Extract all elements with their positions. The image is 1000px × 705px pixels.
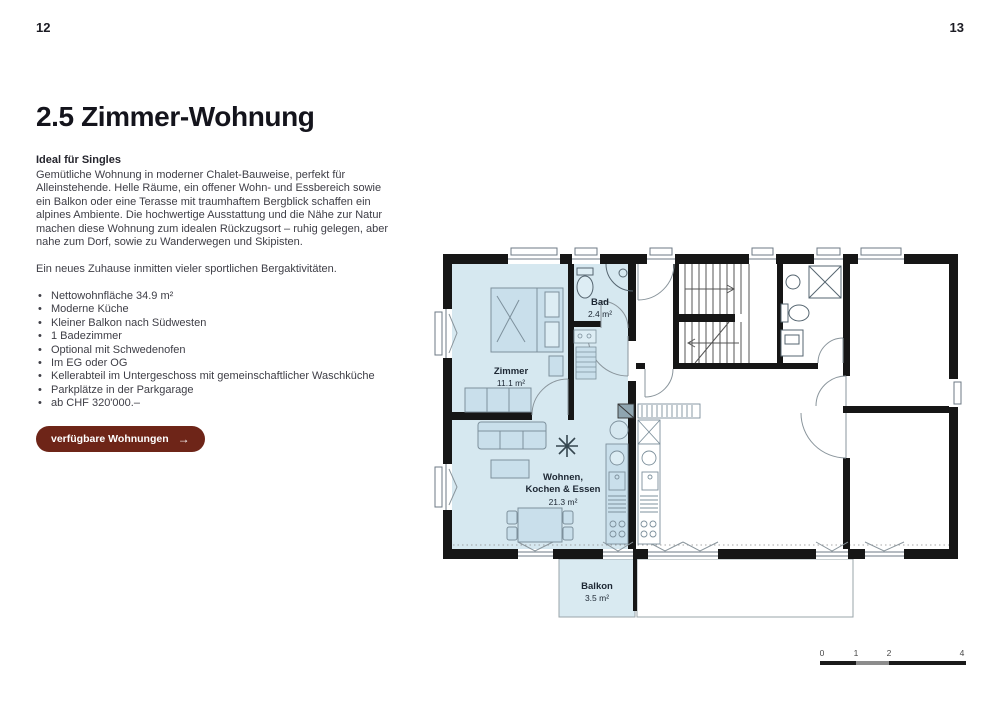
- scale-bar: 0 1 2 4: [820, 648, 970, 672]
- nightstand: [549, 356, 563, 376]
- sofa: [478, 422, 546, 449]
- section-subtitle: Ideal für Singles: [36, 154, 396, 168]
- scale-bar-line: [820, 661, 966, 665]
- neighbor-terrace: [637, 559, 853, 617]
- room-label-balkon: Balkon: [581, 581, 613, 592]
- arrow-right-icon: →: [178, 434, 190, 444]
- feature-item: Optional mit Schwedenofen: [36, 344, 396, 357]
- scale-tick: 1: [854, 648, 859, 658]
- feature-item: 1 Badezimmer: [36, 330, 396, 343]
- note-paragraph: Ein neues Zuhause inmitten vieler sportl…: [36, 263, 396, 277]
- room-label-wohnen-2: Kochen & Essen: [526, 484, 601, 495]
- page-title: 2.5 Zimmer-Wohnung: [36, 101, 396, 133]
- bed: [491, 288, 563, 352]
- room-label-bad: Bad: [591, 297, 609, 308]
- feature-item: ab CHF 320'000.–: [36, 397, 396, 410]
- plant-icon: [556, 435, 578, 457]
- feature-item: Im EG oder OG: [36, 357, 396, 370]
- feature-item: Kellerabteil im Untergeschoss mit gemein…: [36, 370, 396, 383]
- coffee-table: [491, 460, 529, 478]
- feature-item: Nettowohnfläche 34.9 m²: [36, 290, 396, 303]
- available-apartments-label: verfügbare Wohnungen: [51, 433, 169, 445]
- balcony-divider: [633, 559, 637, 611]
- feature-item: Moderne Küche: [36, 303, 396, 316]
- room-area-balkon: 3.5 m²: [585, 593, 609, 603]
- room-area-wohnen: 21.3 m²: [549, 497, 578, 507]
- scale-tick: 2: [887, 648, 892, 658]
- page-number-right: 13: [950, 20, 964, 35]
- entry-shelf: [574, 330, 596, 379]
- feature-item: Kleiner Balkon nach Südwesten: [36, 317, 396, 330]
- available-apartments-button[interactable]: verfügbare Wohnungen →: [36, 426, 205, 452]
- wardrobe: [465, 388, 531, 412]
- feature-item: Parkplätze in der Parkgarage: [36, 384, 396, 397]
- page-number-left: 12: [36, 20, 50, 35]
- text-column: 2.5 Zimmer-Wohnung Ideal für Singles Gem…: [36, 101, 396, 452]
- room-label-zimmer: Zimmer: [494, 366, 529, 377]
- right-window: [949, 379, 961, 407]
- scale-tick: 4: [960, 648, 965, 658]
- floor-plan: Zimmer 11.1 m² Bad 2.4 m² Wohnen, Kochen…: [433, 246, 963, 636]
- feature-list: Nettowohnfläche 34.9 m² Moderne Küche Kl…: [36, 290, 396, 411]
- room-label-wohnen-1: Wohnen,: [543, 472, 583, 483]
- scale-tick: 0: [820, 648, 825, 658]
- room-area-zimmer: 11.1 m²: [497, 378, 525, 388]
- room-area-bad: 2.4 m²: [588, 309, 612, 319]
- intro-paragraph: Gemütliche Wohnung in moderner Chalet-Ba…: [36, 169, 396, 250]
